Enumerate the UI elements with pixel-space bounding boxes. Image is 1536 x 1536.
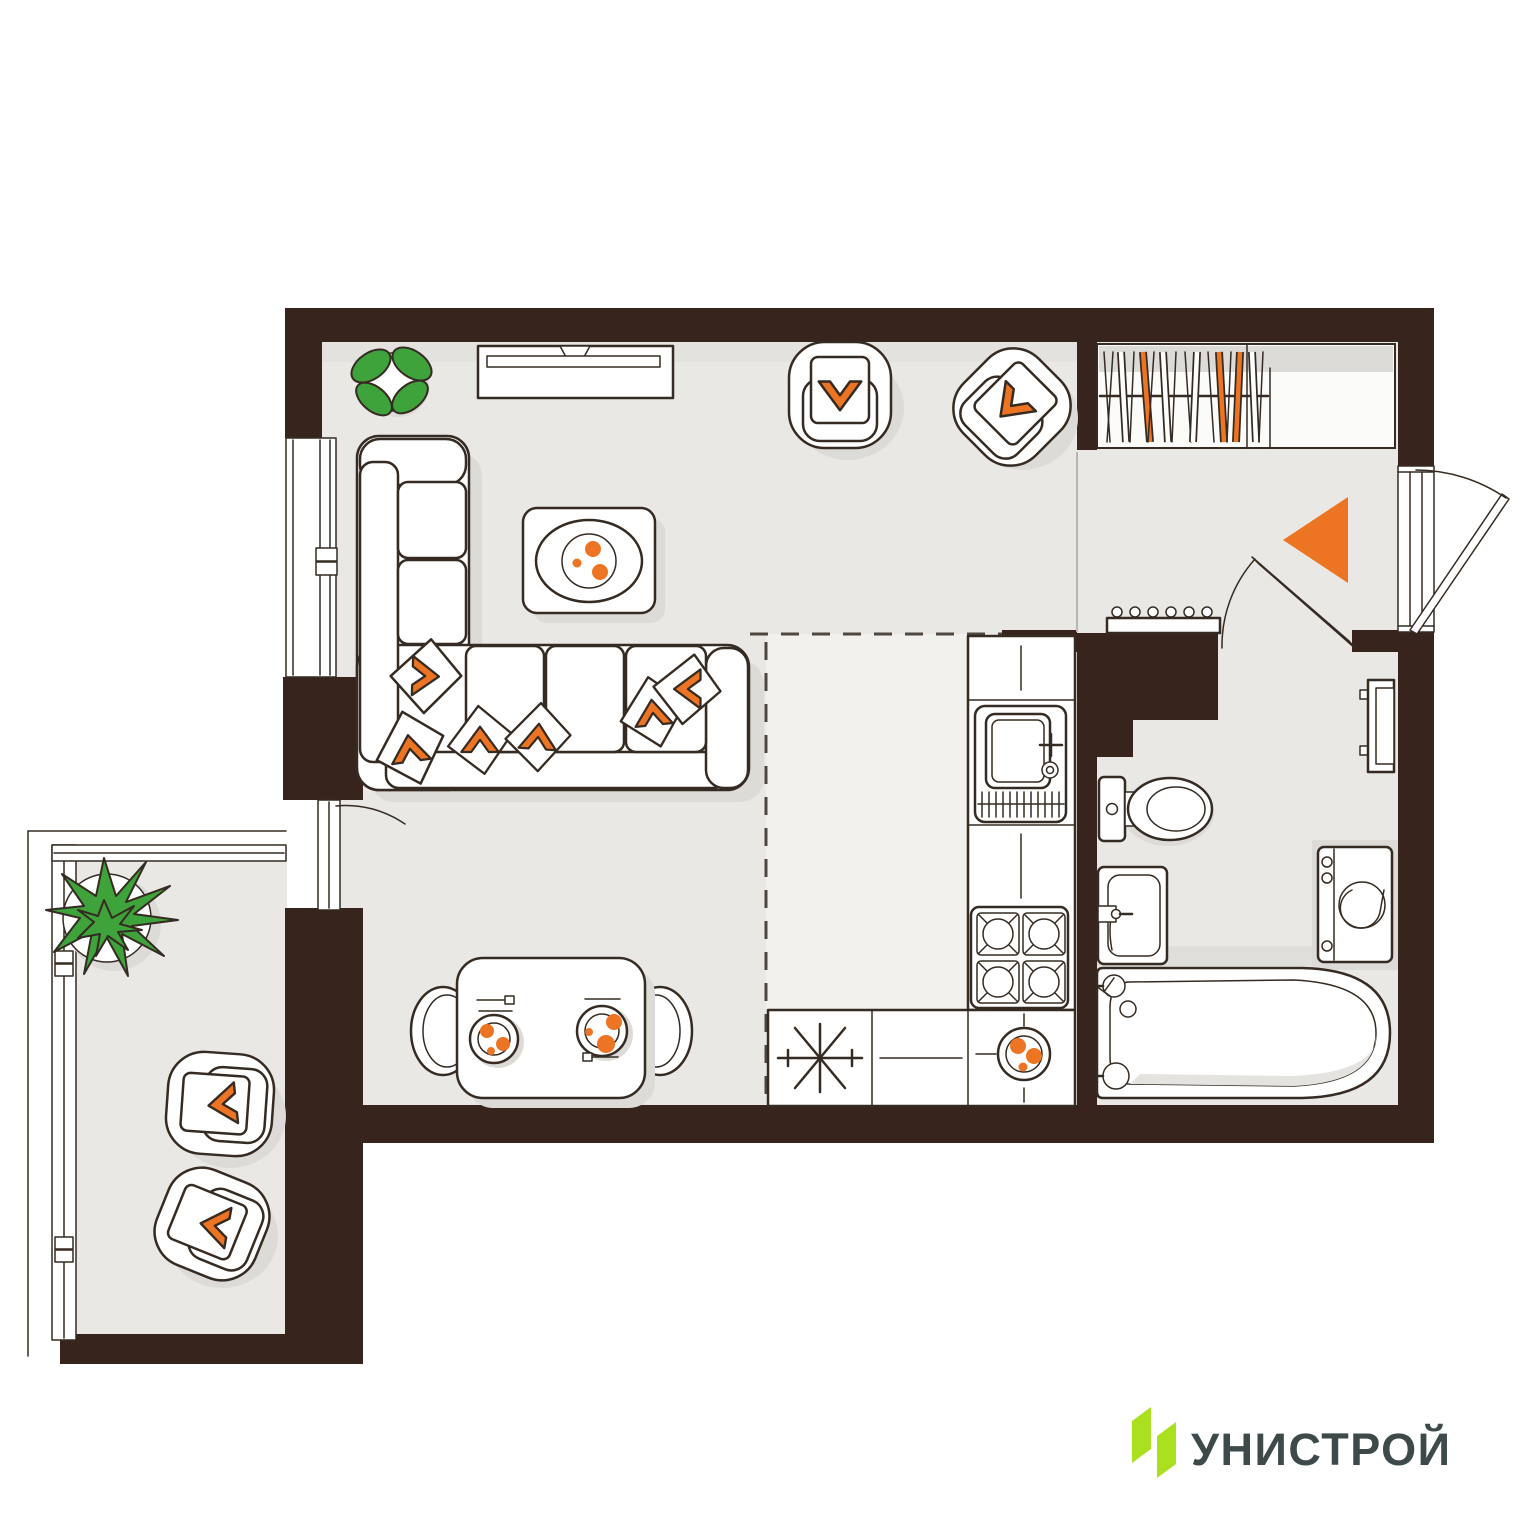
burner [1023, 913, 1065, 955]
logo-mark-icon [1132, 1407, 1151, 1463]
wall-balcony-bottom [60, 1334, 363, 1364]
wall-left-column [285, 908, 363, 1338]
washing-machine-icon [1312, 840, 1398, 970]
bathtub-icon [1096, 968, 1390, 1098]
living-window [286, 438, 337, 677]
logo-wordmark: УНИСТРОЙ [1191, 1424, 1451, 1475]
toilet-icon [1099, 777, 1214, 846]
wall-right-lower [1398, 630, 1434, 1143]
brand-logo: УНИСТРОЙ [1132, 1407, 1451, 1478]
wall-top [285, 308, 1434, 342]
wall-shadow-band [322, 342, 1077, 362]
burner [977, 961, 1019, 1003]
tv-stand-icon [478, 346, 673, 398]
wall-left-pier [283, 677, 363, 800]
wall-stub-entry [1352, 630, 1398, 652]
wall-right-upper [1398, 308, 1434, 468]
stove-4-burner-icon [971, 907, 1068, 1008]
logo-mark-icon [1157, 1422, 1176, 1478]
wall-closet-divider [1077, 308, 1097, 450]
wall-bathroom-pier [1077, 633, 1218, 720]
entrance-door [1398, 466, 1509, 634]
wall-bathroom-pier-step [1077, 720, 1133, 757]
wall-bottom [363, 1105, 1434, 1143]
burner [977, 913, 1019, 955]
floor-plan-drawing: УНИСТРОЙ [0, 0, 1536, 1536]
coffee-table-icon [523, 508, 665, 623]
washbasin-icon [1098, 867, 1167, 964]
burner [1023, 961, 1065, 1003]
wardrobe-closet [1097, 344, 1395, 448]
armchair-icon [789, 342, 904, 460]
wall-left-upper [285, 308, 322, 438]
kitchen-sink-icon [975, 706, 1066, 822]
floor-plan-page: УНИСТРОЙ [0, 0, 1536, 1536]
